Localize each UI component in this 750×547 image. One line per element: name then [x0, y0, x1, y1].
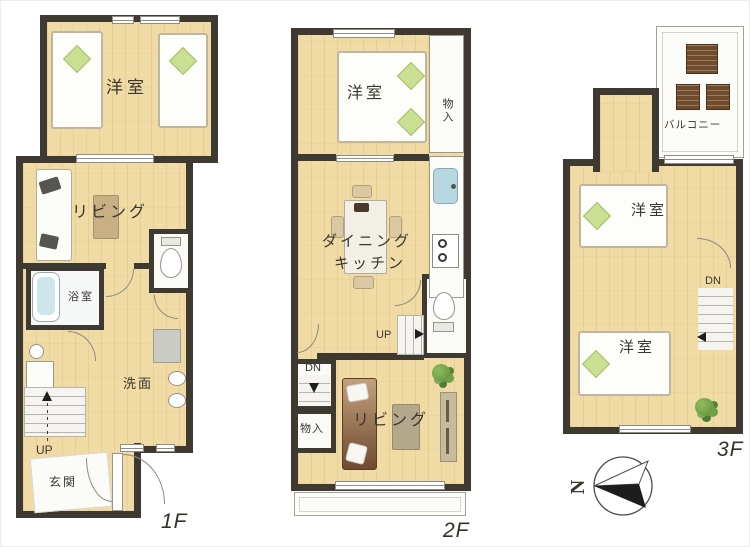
- down-arrow-icon: [309, 383, 319, 393]
- window: [112, 16, 134, 24]
- room-label-living-2f: リビング: [353, 413, 429, 429]
- floor-label-1f: 1F: [161, 511, 188, 532]
- interior-wall: [134, 263, 149, 269]
- room-label-bedroom-1f: 洋室: [106, 79, 148, 96]
- floor-label-3f: 3F: [717, 439, 744, 460]
- room-label-dining: ダイニング: [322, 234, 412, 249]
- window: [333, 29, 395, 38]
- outdoor-table-icon: [686, 44, 718, 74]
- room-label-washroom: 洗面: [123, 377, 153, 390]
- compass-icon: [575, 448, 675, 526]
- tv-icon: [446, 400, 449, 422]
- closet-top-2f: [429, 35, 464, 153]
- room-label-balcony: バルコニー: [664, 120, 721, 131]
- room-label-kitchen: キッチン: [334, 256, 406, 271]
- window: [156, 444, 175, 452]
- stair-direction-line: [47, 403, 48, 445]
- dining-chair: [353, 276, 374, 289]
- room-label-bedroom-top-3f: 洋室: [631, 203, 667, 218]
- stairs-down-label: DN: [305, 363, 321, 374]
- outdoor-chair-icon: [706, 84, 730, 110]
- toilet-icon: [161, 237, 181, 246]
- north-label: N: [568, 480, 588, 494]
- window: [619, 425, 691, 433]
- outdoor-chair-icon: [676, 84, 700, 110]
- window: [140, 16, 180, 24]
- room-label-bedroom-2f: 洋室: [347, 86, 385, 102]
- bathtub-icon: [32, 272, 60, 322]
- washing-machine-icon: [26, 361, 54, 388]
- window: [120, 444, 144, 452]
- vanity-cabinet: [153, 329, 181, 363]
- balcony-2f: [294, 492, 466, 516]
- teapot-icon: [354, 203, 369, 212]
- toilet-icon: [160, 248, 182, 278]
- floor-plan-sheet: 洋室 リビング 浴室 洗面: [0, 0, 750, 547]
- sliding-door: [76, 154, 154, 163]
- closet-label-top: 物入: [441, 98, 452, 124]
- interior-wall: [298, 154, 336, 161]
- floor-plan-1f: 洋室 リビング 浴室 洗面: [16, 13, 221, 538]
- plant-icon: [695, 398, 714, 416]
- up-arrow-icon: [415, 329, 424, 339]
- sliding-door: [336, 155, 394, 162]
- room-label-living-1f: リビング: [72, 205, 148, 221]
- stairs-up-label: UP: [36, 444, 53, 456]
- stove-icon: [432, 234, 459, 268]
- outline-notch-3f: [593, 88, 659, 172]
- front-door-arc: [123, 454, 165, 504]
- dining-chair: [352, 185, 372, 198]
- front-door-leaf: [112, 453, 123, 511]
- stairs-up-1f: [24, 387, 86, 437]
- floor-plan-3f: バルコニー 洋室 DN 洋室 3F: [559, 26, 749, 466]
- stove-burner: [438, 253, 447, 262]
- interior-wall: [394, 154, 429, 161]
- room-label-bedroom-bottom-3f: 洋室: [619, 340, 655, 355]
- plant-icon: [432, 364, 450, 382]
- closet-label-bottom: 物入: [300, 424, 324, 435]
- stairs-down-label: DN: [705, 276, 721, 287]
- floor-label-2f: 2F: [443, 520, 470, 541]
- room-label-entrance: 玄関: [49, 476, 77, 488]
- sink-icon: [168, 393, 186, 408]
- room-label-bath: 浴室: [68, 292, 94, 303]
- faucet-icon: [451, 184, 456, 189]
- window: [335, 481, 445, 490]
- toilet-icon: [433, 322, 454, 332]
- sink-icon: [168, 371, 186, 386]
- washing-machine-icon: [29, 344, 44, 359]
- tv-icon: [446, 428, 449, 454]
- stairs-up-label: UP: [376, 330, 391, 341]
- stove-burner: [438, 239, 447, 248]
- toilet-icon: [433, 292, 455, 320]
- sofa-blanket: [346, 382, 370, 402]
- sliding-door: [664, 155, 734, 164]
- up-arrow-icon: [42, 391, 52, 401]
- floor-plan-2f: 物入 洋室 ダイニング キッチン UP: [291, 28, 473, 547]
- down-arrow-icon: [697, 332, 706, 342]
